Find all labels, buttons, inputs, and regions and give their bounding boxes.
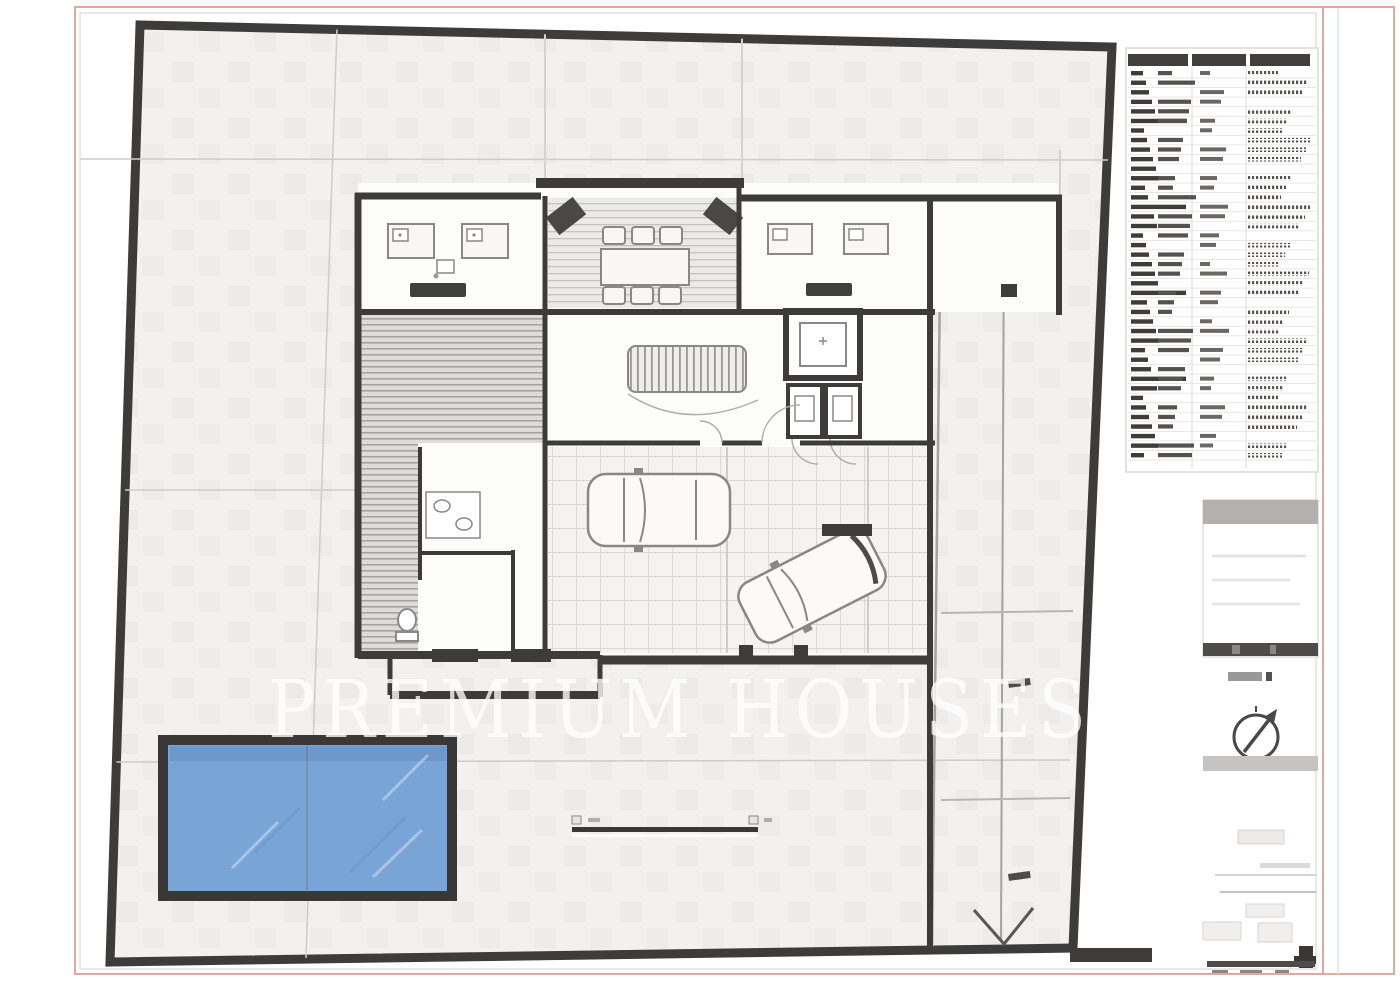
title-block: [1203, 830, 1316, 973]
legend-row-entry: [1248, 119, 1287, 124]
legend-row-entry: [1128, 116, 1316, 117]
legend-row-entry: [1128, 125, 1316, 126]
pillow: [773, 229, 787, 240]
legend-row-entry: [1131, 367, 1151, 371]
legend-row-entry: [1131, 281, 1158, 285]
north-arrow-icon: [1234, 706, 1278, 759]
legend-row-entry: [1128, 221, 1316, 222]
legend-row-entry: [1131, 138, 1147, 142]
legend-row-entry: [1200, 329, 1229, 333]
legend-row-entry: [1248, 90, 1302, 95]
watermark-text: PREMIUM HOUSES: [268, 663, 1093, 756]
legend-row-entry: [1158, 377, 1183, 381]
legend-row-entry: [1158, 386, 1181, 390]
legend-row-entry: [1248, 71, 1278, 76]
toilet: [398, 609, 416, 631]
legend-row-entry: [1248, 348, 1303, 353]
legend-row-entry: [1200, 119, 1215, 123]
legend-row-entry: [1158, 100, 1191, 104]
legend-row-entry: [1128, 316, 1316, 317]
legend-row-entry: [1158, 348, 1189, 352]
legend-row-entry: [1158, 138, 1183, 142]
legend-row-entry: [1128, 211, 1316, 212]
legend-row-entry: [1131, 424, 1152, 428]
legend-row-entry: [1248, 252, 1285, 257]
legend-row-entry: [1128, 297, 1316, 298]
legend-row-entry: [1248, 138, 1311, 143]
legend-row-entry: [1131, 300, 1147, 304]
legend-row-entry: [1248, 205, 1310, 210]
legend-row-entry: [1131, 252, 1149, 256]
legend-row-entry: [1131, 205, 1186, 209]
chair: [631, 287, 653, 304]
dresser: [410, 283, 466, 297]
legend-row-entry: [1158, 367, 1185, 371]
legend-row-entry: [1158, 291, 1176, 295]
legend-row-entry: [1158, 272, 1180, 276]
legend-row-entry: [1248, 128, 1282, 133]
legend-row-entry: [1158, 147, 1181, 151]
legend-row-entry: [1248, 443, 1287, 448]
legend-row-entry: [1248, 424, 1297, 429]
legend-row-entry: [1248, 81, 1307, 86]
legend-row-entry: [1128, 106, 1316, 107]
legend-row-entry: [1248, 291, 1299, 296]
legend-row-entry: [1248, 195, 1281, 200]
legend-row-entry: [1131, 186, 1145, 190]
legend-row-entry: [1158, 109, 1189, 113]
legend-row-entry: [1248, 386, 1283, 391]
legend-row-entry: [1131, 338, 1159, 342]
legend-row-entry: [1131, 109, 1155, 113]
legend-row-entry: [1128, 164, 1316, 165]
legend-row-entry: [1128, 450, 1316, 451]
legend-row-entry: [1158, 71, 1172, 75]
legend-row-entry: [1131, 128, 1144, 132]
legend-row-entry: [1128, 326, 1316, 327]
legend-row-entry: [1248, 453, 1282, 458]
legend-row-entry: [1128, 154, 1316, 155]
car-parked: [588, 468, 730, 552]
legend-row-entry: [1248, 176, 1291, 181]
legend-row-entry: [1131, 396, 1143, 400]
legend-row-entry: [1200, 319, 1212, 323]
legend-row-entry: [1131, 453, 1144, 457]
legend-row-entry: [1200, 243, 1216, 247]
legend-row-entry: [1131, 443, 1158, 447]
legend-row-entry: [1158, 424, 1173, 428]
chair: [660, 227, 682, 244]
legend-row-entry: [1200, 415, 1222, 419]
legend-row-entry: [1248, 358, 1298, 363]
legend-row-entry: [1128, 240, 1316, 241]
legend-row-entry: [1158, 195, 1196, 199]
legend-row-entry: [1158, 224, 1190, 228]
legend-row-entry: [1158, 214, 1192, 218]
legend-row-entry: [1131, 71, 1143, 75]
legend-row-entry: [1128, 345, 1316, 346]
legend-row-entry: [1200, 348, 1223, 352]
nightstand: [437, 260, 454, 273]
legend-row-entry: [1131, 243, 1146, 247]
legend-row-entry: [1158, 186, 1173, 190]
chair: [603, 287, 625, 304]
legend-row-entry: [1131, 434, 1155, 438]
legend-row-entry: [1158, 453, 1192, 457]
legend-row-entry: [1248, 281, 1304, 286]
legend-row-entry: [1128, 307, 1316, 308]
legend-row-entry: [1200, 291, 1221, 295]
chair: [632, 227, 654, 244]
floor-plan-drawing: PREMIUM HOUSES: [0, 0, 1400, 991]
legend-row-entry: [1128, 374, 1316, 375]
legend-row-entry: [1200, 205, 1228, 209]
vanity: [426, 492, 480, 538]
legend-row-entry: [1200, 358, 1220, 362]
side-panel: [1203, 500, 1318, 771]
legend-row-entry: [1131, 348, 1145, 352]
legend-row-entry: [1131, 176, 1159, 180]
legend-row-entry: [1131, 100, 1152, 104]
legend-row-entry: [1248, 329, 1279, 334]
legend-row-entry: [1131, 224, 1157, 228]
legend-row-entry: [1131, 358, 1148, 362]
legend-row-entry: [1248, 377, 1288, 382]
legend-header: [1128, 54, 1310, 66]
legend-row-entry: [1131, 195, 1148, 199]
column: [739, 645, 753, 658]
legend-row-entry: [1128, 393, 1316, 394]
legend-row-entry: [1131, 147, 1150, 151]
legend-row-entry: [1128, 460, 1316, 461]
legend-row-entry: [1200, 157, 1223, 161]
legend-row-entry: [1131, 233, 1143, 237]
legend-row-entry: [1131, 167, 1156, 171]
legend-row-entry: [1200, 386, 1211, 390]
legend-row-entry: [1128, 87, 1316, 88]
legend-row-entry: [1248, 310, 1289, 315]
legend-row-entry: [1128, 269, 1316, 270]
legend-row-entry: [1128, 278, 1316, 279]
panel-title-bar: [1203, 643, 1318, 656]
legend-row-entry: [1200, 300, 1218, 304]
title-block-rule: [1207, 961, 1315, 967]
legend-row-entry: [1128, 144, 1316, 145]
legend-row-entry: [1128, 288, 1316, 289]
legend-row-entry: [1128, 355, 1316, 356]
legend-row-entry: [1200, 71, 1210, 75]
legend-row-entry: [1248, 319, 1284, 324]
legend-row-entry: [1131, 386, 1157, 390]
legend-row-entry: [1248, 272, 1309, 277]
legend-row-entry: [1248, 147, 1306, 152]
legend-row-entry: [1158, 300, 1174, 304]
legend-row-entry: [1131, 262, 1152, 266]
legend-row-entry: [1158, 338, 1191, 342]
legend-row-entry: [1131, 90, 1149, 94]
legend-row-entry: [1128, 202, 1316, 203]
legend-row-entry: [1248, 224, 1300, 229]
pillow: [849, 229, 863, 240]
legend-row-entry: [1158, 329, 1193, 333]
legend-row-entry: [1200, 90, 1224, 94]
legend-row-entry: [1200, 186, 1214, 190]
legend-row-entry: [1200, 176, 1217, 180]
legend-row-entry: [1158, 81, 1195, 85]
legend-row-entry: [1200, 272, 1227, 276]
legend-row-entry: [1200, 262, 1210, 266]
legend-row-entry: [1128, 259, 1316, 260]
legend-row-entry: [1158, 310, 1172, 314]
legend-row-entry: [1128, 431, 1316, 432]
legend-row-entry: [1200, 128, 1212, 132]
legend-row-entry: [1128, 230, 1316, 231]
legend-row-entry: [1131, 319, 1153, 323]
legend-row-entry: [1128, 402, 1316, 403]
legend-row-entry: [1200, 377, 1214, 381]
legend-row-entry: [1128, 250, 1316, 251]
legend-row-entry: [1200, 233, 1219, 237]
legend-row-entry: [1158, 415, 1175, 419]
legend-row-entry: [1248, 262, 1280, 267]
chair: [603, 227, 625, 244]
legend-row-entry: [1248, 186, 1286, 191]
legend-row-entry: [1248, 214, 1305, 219]
legend-row-entry: [1158, 157, 1179, 161]
swimming-pool: [163, 740, 452, 896]
legend-row-entry: [1158, 252, 1184, 256]
legend-row-entry: [1248, 243, 1290, 248]
legend-row-entry: [1131, 329, 1156, 333]
legend-row-entry: [1128, 135, 1316, 136]
legend-row-entry: [1200, 434, 1216, 438]
legend-row-entry: [1200, 214, 1225, 218]
legend-row-entry: [1248, 405, 1307, 410]
legend-row-entry: [1248, 109, 1292, 114]
legend-row-entry: [1158, 233, 1188, 237]
legend-row-entry: [1128, 335, 1316, 336]
legend-row-entry: [1200, 100, 1221, 104]
legend-row-entry: [1128, 97, 1316, 98]
legend-row-entry: [1248, 415, 1302, 420]
legend-row-entry: [1128, 183, 1316, 184]
wall-segment: [822, 524, 872, 536]
legend-row-entry: [1158, 176, 1175, 180]
legend-row-entry: [1248, 157, 1301, 162]
column: [794, 645, 808, 658]
legend-row-entry: [1131, 157, 1153, 161]
dresser: [806, 283, 852, 296]
legend-row-entry: [1200, 147, 1226, 151]
legend-row-entry: [1128, 173, 1316, 174]
legend-row-entry: [1128, 412, 1316, 413]
legend-row-entry: [1131, 415, 1149, 419]
dining-table: [601, 249, 689, 285]
legend-row-entry: [1131, 405, 1146, 409]
legend-row-entry: [1158, 405, 1177, 409]
legend-row-entry: [1200, 405, 1225, 409]
legend-row-entry: [1128, 364, 1316, 365]
legend-row-entry: [1131, 272, 1155, 276]
chair: [659, 287, 681, 304]
legend-row-entry: [1131, 310, 1150, 314]
legend-row-entry: [1158, 262, 1182, 266]
legend-row-entry: [1158, 443, 1194, 447]
legend-row-entry: [1128, 192, 1316, 193]
legend-row-entry: [1128, 383, 1316, 384]
legend-row-entry: [1131, 214, 1154, 218]
service-shaft: [1001, 284, 1017, 297]
legend-row-entry: [1248, 396, 1278, 401]
legend-table: [1126, 48, 1318, 472]
legend-row-entry: [1131, 81, 1146, 85]
legend-row-entry: [1200, 443, 1213, 447]
legend-row-entry: [1158, 119, 1187, 123]
legend-row-entry: [1128, 78, 1316, 79]
sheet: PREMIUM HOUSES: [0, 0, 1400, 991]
legend-row-entry: [1248, 338, 1308, 343]
panel-header: [1203, 500, 1318, 524]
legend-row-entry: [1128, 421, 1316, 422]
toilet-tank: [396, 632, 418, 641]
legend-row-entry: [1128, 441, 1316, 442]
